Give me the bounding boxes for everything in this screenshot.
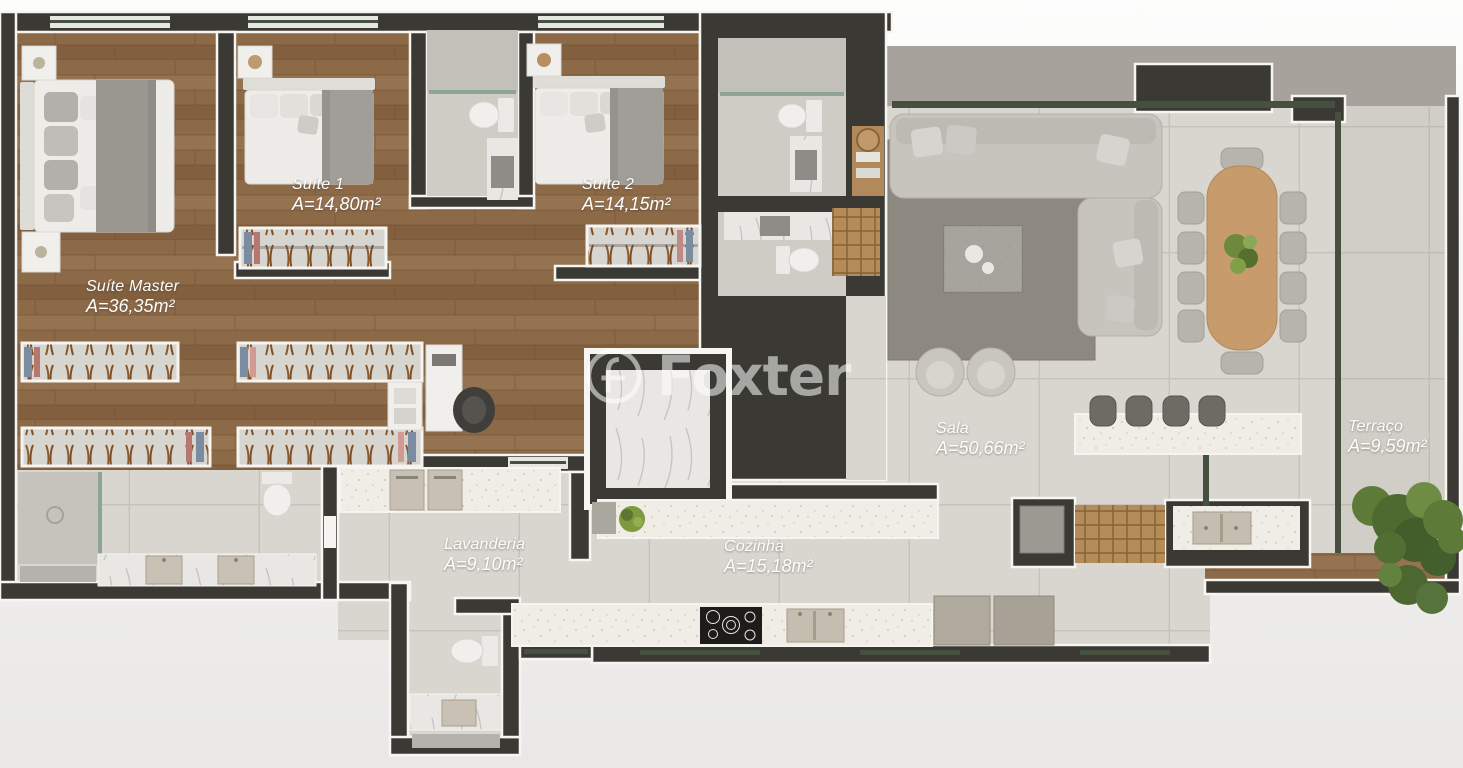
glass-kitchen-bottom-2 bbox=[860, 650, 960, 655]
shower-glass bbox=[98, 472, 102, 566]
armchair bbox=[916, 348, 964, 396]
bath-mat bbox=[412, 734, 500, 748]
glass-kitchen-bottom-3 bbox=[1080, 650, 1170, 655]
toilet-bowl bbox=[451, 639, 483, 663]
bath-mat bbox=[20, 566, 96, 582]
window-top-suite2 bbox=[538, 16, 664, 28]
closet-rack bbox=[22, 428, 210, 466]
closet-rack bbox=[238, 343, 422, 381]
laundry-door-leaf bbox=[324, 516, 336, 548]
toilet-tank bbox=[806, 100, 822, 132]
kitchen-sink bbox=[787, 609, 844, 642]
hall-corridor bbox=[846, 296, 886, 480]
toilet-bowl bbox=[778, 104, 806, 128]
armchair bbox=[967, 348, 1015, 396]
toilet-bowl bbox=[263, 484, 291, 516]
cooktop bbox=[700, 607, 762, 644]
nightstand bbox=[527, 44, 561, 76]
suite-1-furniture bbox=[238, 46, 386, 268]
glass-kitchen-bottom-1 bbox=[640, 650, 760, 655]
window-top-master bbox=[50, 16, 170, 28]
shaft bbox=[584, 348, 732, 510]
sink bbox=[442, 700, 476, 726]
toilet-bowl bbox=[789, 248, 819, 272]
bed-suite2 bbox=[533, 76, 665, 184]
floor-plan-page: Foxter Suíte Master A=36,35m² Suíte 1 A=… bbox=[0, 0, 1463, 768]
wall-wc-left bbox=[390, 583, 408, 755]
nightstand bbox=[22, 232, 60, 272]
appliance bbox=[994, 596, 1054, 645]
vanity bbox=[98, 554, 316, 586]
toilet-tank bbox=[776, 246, 790, 274]
gourmet-sink bbox=[1193, 512, 1251, 544]
window-top-suite1 bbox=[248, 16, 378, 28]
kitchen-counter-top bbox=[598, 500, 938, 538]
bath-3 bbox=[718, 212, 846, 296]
towel-shelf bbox=[388, 382, 422, 430]
shower-floor bbox=[18, 472, 100, 564]
sink bbox=[795, 150, 817, 180]
pantry-shelf bbox=[832, 208, 880, 276]
floor-plan-rendering bbox=[0, 0, 1463, 768]
laundry-furniture bbox=[340, 468, 560, 512]
glass-living-top bbox=[892, 101, 1335, 108]
wall-kitchen-top bbox=[713, 484, 938, 500]
bed-master bbox=[20, 80, 174, 232]
basket bbox=[857, 129, 879, 151]
wall-left bbox=[0, 12, 16, 600]
closet-rack bbox=[238, 428, 422, 466]
toilet-bowl bbox=[469, 102, 499, 128]
towel-niche bbox=[852, 126, 884, 196]
closet-rack-suite2 bbox=[587, 226, 700, 266]
wall-bath1-left bbox=[410, 32, 427, 208]
coffee-table bbox=[944, 226, 1022, 292]
appliance bbox=[934, 596, 990, 645]
sink bbox=[760, 216, 790, 236]
bbq-grate bbox=[1075, 505, 1165, 563]
glass-laundry-bottom bbox=[524, 649, 588, 654]
grill bbox=[1020, 506, 1064, 553]
wall-wc-top bbox=[455, 598, 520, 614]
bath-1 bbox=[427, 30, 518, 200]
office-chair bbox=[453, 387, 495, 433]
toilet-tank bbox=[482, 636, 498, 666]
closet-rack-suite1 bbox=[240, 228, 386, 268]
toilet-tank bbox=[262, 472, 292, 484]
sink bbox=[491, 156, 514, 188]
nightstand bbox=[22, 46, 56, 80]
toilet-tank bbox=[498, 98, 514, 132]
nightstand bbox=[238, 46, 272, 78]
wall-master-suite1 bbox=[217, 32, 235, 255]
wall-under-suite2-closet bbox=[555, 266, 700, 280]
bed-suite1 bbox=[243, 78, 375, 184]
bath-2 bbox=[718, 38, 846, 196]
closet-rack bbox=[22, 343, 178, 381]
glass-terrace bbox=[1335, 112, 1341, 553]
kitchen-mat bbox=[592, 502, 616, 534]
